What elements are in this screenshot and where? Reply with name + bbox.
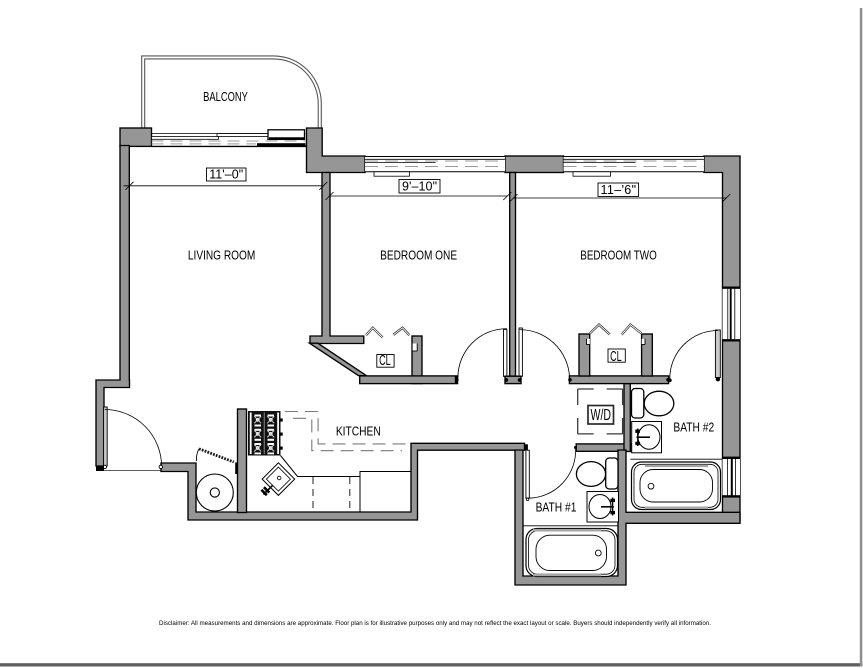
- svg-text:BALCONY: BALCONY: [203, 91, 248, 105]
- svg-text:CL: CL: [379, 352, 391, 369]
- svg-text:BEDROOM ONE: BEDROOM ONE: [380, 250, 457, 263]
- svg-text:W/D: W/D: [591, 406, 612, 424]
- svg-text:BATH #2: BATH #2: [673, 422, 714, 435]
- svg-text:LIVING ROOM: LIVING ROOM: [188, 250, 255, 263]
- svg-text:CL: CL: [610, 348, 622, 365]
- svg-text:BEDROOM TWO: BEDROOM TWO: [580, 250, 657, 263]
- svg-text:KITCHEN: KITCHEN: [336, 425, 381, 438]
- svg-text:Disclaimer: All measurements a: Disclaimer: All measurements and dimensi…: [159, 620, 711, 627]
- svg-text:11–'6": 11–'6": [601, 183, 637, 197]
- svg-text:11'–0": 11'–0": [209, 168, 243, 182]
- svg-text:9'–10": 9'–10": [402, 179, 437, 193]
- svg-text:BATH #1: BATH #1: [536, 501, 577, 514]
